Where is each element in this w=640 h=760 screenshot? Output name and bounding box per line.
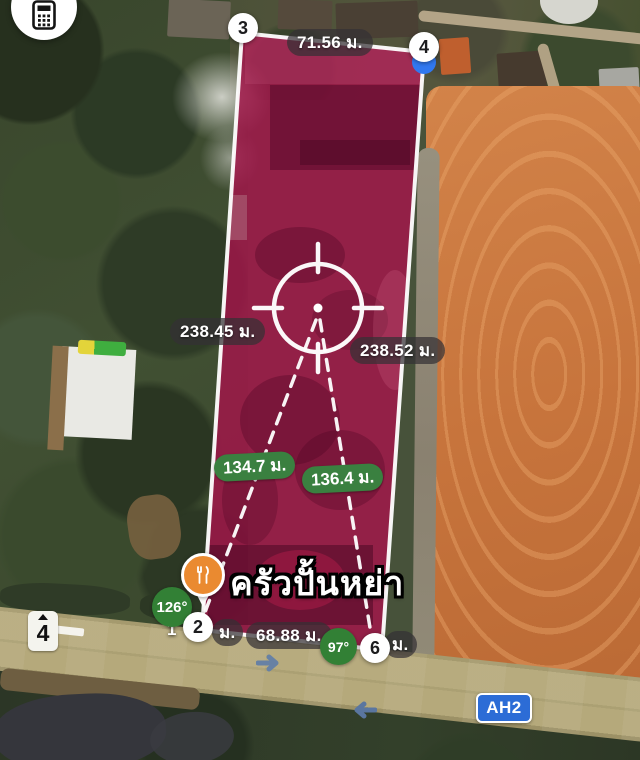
- vertex-marker-6[interactable]: 6: [360, 633, 390, 663]
- highway-badge-ah2: AH2: [476, 693, 532, 723]
- vertex-marker-3[interactable]: 3: [228, 13, 258, 43]
- poi-pin-restaurant[interactable]: [180, 553, 226, 615]
- route-shield-number: 4: [37, 620, 50, 648]
- measurement-fragment-left-unit: ม.: [212, 619, 243, 646]
- measurement-east: 238.52 ม.: [350, 337, 445, 364]
- vertex-marker-4[interactable]: 4: [409, 32, 439, 62]
- measurement-west: 238.45 ม.: [170, 318, 265, 345]
- measurement-diagonal-right: 136.4 ม.: [301, 463, 384, 494]
- route-shield-crest-icon: [38, 614, 48, 620]
- arrow-right-icon: [256, 654, 288, 672]
- angle-badge-southeast: 97°: [320, 628, 357, 665]
- phone-keypad-icon: [32, 0, 56, 30]
- measurement-bottom: 68.88 ม.: [246, 622, 332, 649]
- map-canvas[interactable]: 71.56 ม. 238.45 ม. 238.52 ม. 134.7 ม. 13…: [0, 0, 640, 760]
- route-shield-4: 4: [28, 611, 58, 651]
- poi-pin-circle: [181, 553, 225, 597]
- arrow-left-icon: [347, 701, 377, 719]
- measurement-top: 71.56 ม.: [287, 29, 373, 56]
- poi-label-restaurant[interactable]: ครัวปั้นหย่า: [230, 556, 404, 610]
- measurement-diagonal-left: 134.7 ม.: [213, 451, 296, 482]
- fork-knife-icon: [193, 565, 213, 585]
- vertex-marker-2[interactable]: 2: [183, 612, 213, 642]
